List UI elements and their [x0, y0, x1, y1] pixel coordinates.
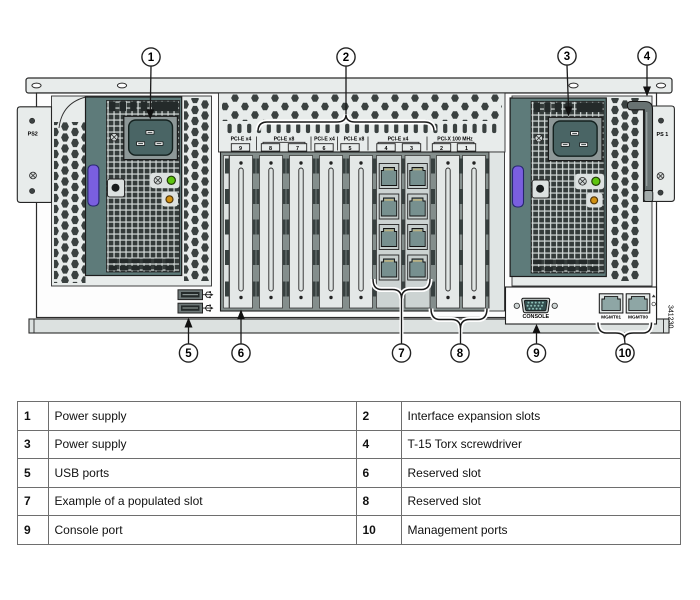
svg-text:PCI-E x4: PCI-E x4: [388, 137, 409, 143]
svg-text:7: 7: [296, 146, 299, 152]
svg-text:8: 8: [457, 348, 464, 360]
svg-text:7: 7: [398, 348, 404, 360]
svg-text:PCI-E x4: PCI-E x4: [314, 137, 335, 143]
svg-text:6: 6: [323, 146, 326, 152]
svg-text:2: 2: [440, 146, 443, 152]
svg-text:PCI-E x4: PCI-E x4: [231, 137, 252, 143]
svg-text:3: 3: [564, 51, 570, 63]
svg-text:6: 6: [238, 348, 244, 360]
svg-text:PCI-E x8: PCI-E x8: [274, 137, 295, 143]
svg-text:341230: 341230: [667, 305, 674, 328]
svg-text:PCI-X 100 MHz: PCI-X 100 MHz: [437, 137, 473, 143]
svg-text:1: 1: [148, 52, 155, 64]
svg-text:MGMT00: MGMT00: [628, 315, 648, 321]
svg-text:9: 9: [239, 146, 242, 152]
svg-text:5: 5: [185, 348, 192, 360]
svg-text:CONSOLE: CONSOLE: [522, 314, 549, 320]
svg-text:PS 1: PS 1: [657, 132, 669, 138]
svg-text:10: 10: [619, 348, 632, 360]
svg-text:5: 5: [349, 146, 352, 152]
svg-text:PS2: PS2: [28, 132, 38, 138]
svg-text:MGMT01: MGMT01: [601, 315, 621, 321]
svg-text:PCI-E x8: PCI-E x8: [344, 137, 365, 143]
svg-text:1: 1: [465, 146, 468, 152]
svg-text:2: 2: [343, 52, 349, 64]
svg-text:4: 4: [644, 51, 651, 63]
svg-text:9: 9: [533, 348, 539, 360]
svg-text:4: 4: [385, 146, 388, 152]
svg-text:3: 3: [410, 146, 413, 152]
svg-text:8: 8: [269, 146, 272, 152]
